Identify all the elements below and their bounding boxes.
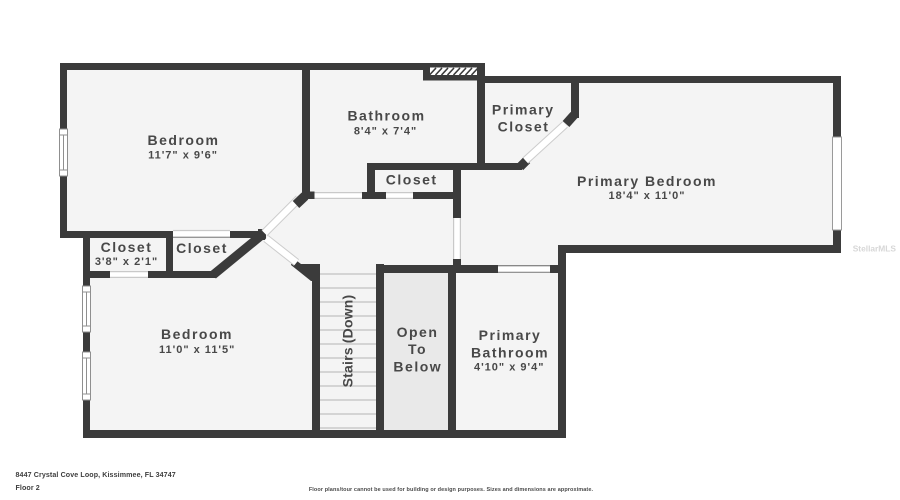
svg-text:Closet: Closet (101, 239, 153, 255)
svg-text:StellarMLS: StellarMLS (853, 244, 897, 254)
svg-text:Closet: Closet (386, 172, 438, 188)
svg-text:8447 Crystal Cove Loop, Kissim: 8447 Crystal Cove Loop, Kissimmee, FL 34… (16, 471, 176, 479)
svg-text:Primary Bedroom: Primary Bedroom (577, 173, 717, 189)
svg-text:Open: Open (397, 324, 439, 340)
svg-text:To: To (408, 341, 427, 357)
svg-text:Stairs (Down): Stairs (Down) (339, 295, 355, 388)
svg-text:8'4" x 7'4": 8'4" x 7'4" (354, 125, 417, 137)
svg-text:4'10" x 9'4": 4'10" x 9'4" (474, 362, 544, 374)
svg-text:Bathroom: Bathroom (471, 344, 549, 360)
svg-text:Bathroom: Bathroom (347, 108, 425, 124)
svg-text:Closet: Closet (176, 240, 228, 256)
svg-text:Primary: Primary (479, 327, 542, 343)
svg-text:Floor 2: Floor 2 (16, 484, 40, 492)
svg-text:Floor plans/tour cannot be use: Floor plans/tour cannot be used for buil… (309, 487, 594, 493)
svg-text:18'4" x 11'0": 18'4" x 11'0" (609, 190, 686, 202)
svg-text:11'0" x 11'5": 11'0" x 11'5" (159, 344, 235, 356)
svg-text:Bedroom: Bedroom (148, 132, 220, 148)
svg-text:Primary: Primary (492, 102, 555, 118)
svg-text:Bedroom: Bedroom (161, 326, 233, 342)
svg-text:Below: Below (393, 358, 442, 374)
svg-text:Closet: Closet (498, 119, 550, 135)
svg-text:3'8" x 2'1": 3'8" x 2'1" (95, 256, 158, 268)
svg-text:11'7" x 9'6": 11'7" x 9'6" (148, 150, 218, 162)
